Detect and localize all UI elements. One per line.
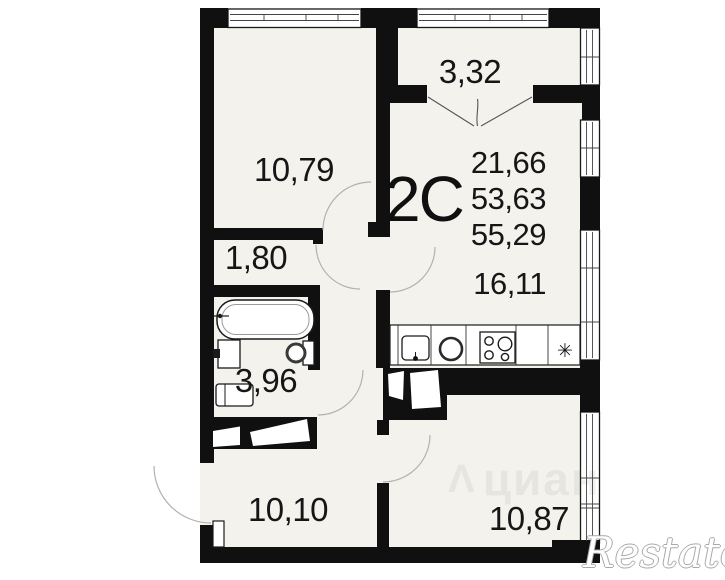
unit-area-value: 53,63 bbox=[426, 182, 546, 218]
unit-area-value: 16,11 bbox=[426, 267, 546, 303]
area-label-bedroom: 10,79 bbox=[239, 151, 349, 189]
unit-area-value: 55,29 bbox=[426, 218, 546, 254]
floor-plan-page: ✳ 3,32 10,79 1,80 3,96 10,10 10,87 2С 21… bbox=[0, 0, 725, 580]
kitchen-sink-icon bbox=[402, 336, 429, 361]
radiator-icon bbox=[213, 521, 224, 547]
area-label-balcony: 3,32 bbox=[415, 53, 525, 91]
unit-area-value: 21,66 bbox=[426, 146, 546, 182]
floor-plan-canvas: ✳ bbox=[0, 0, 725, 580]
unit-area-stack: 21,66 53,63 55,29 16,11 bbox=[426, 146, 546, 303]
vent-shaft-left bbox=[207, 417, 317, 449]
window-balcony-right bbox=[581, 28, 600, 85]
window-right-middle bbox=[581, 230, 600, 360]
window-top-left bbox=[228, 9, 361, 28]
area-label-bathroom: 3,96 bbox=[211, 362, 321, 400]
window-top-right bbox=[417, 9, 549, 28]
window-right-upper bbox=[581, 120, 600, 177]
stove-icon bbox=[480, 332, 515, 363]
area-label-room-left: 10,10 bbox=[233, 491, 343, 529]
area-label-room-right: 10,87 bbox=[474, 500, 584, 538]
vent-shaft-right bbox=[383, 368, 447, 420]
bathtub-icon bbox=[213, 300, 314, 339]
area-label-hall: 1,80 bbox=[201, 239, 311, 277]
fridge-icon: ✳ bbox=[557, 341, 573, 362]
second-sink-icon bbox=[440, 338, 462, 360]
